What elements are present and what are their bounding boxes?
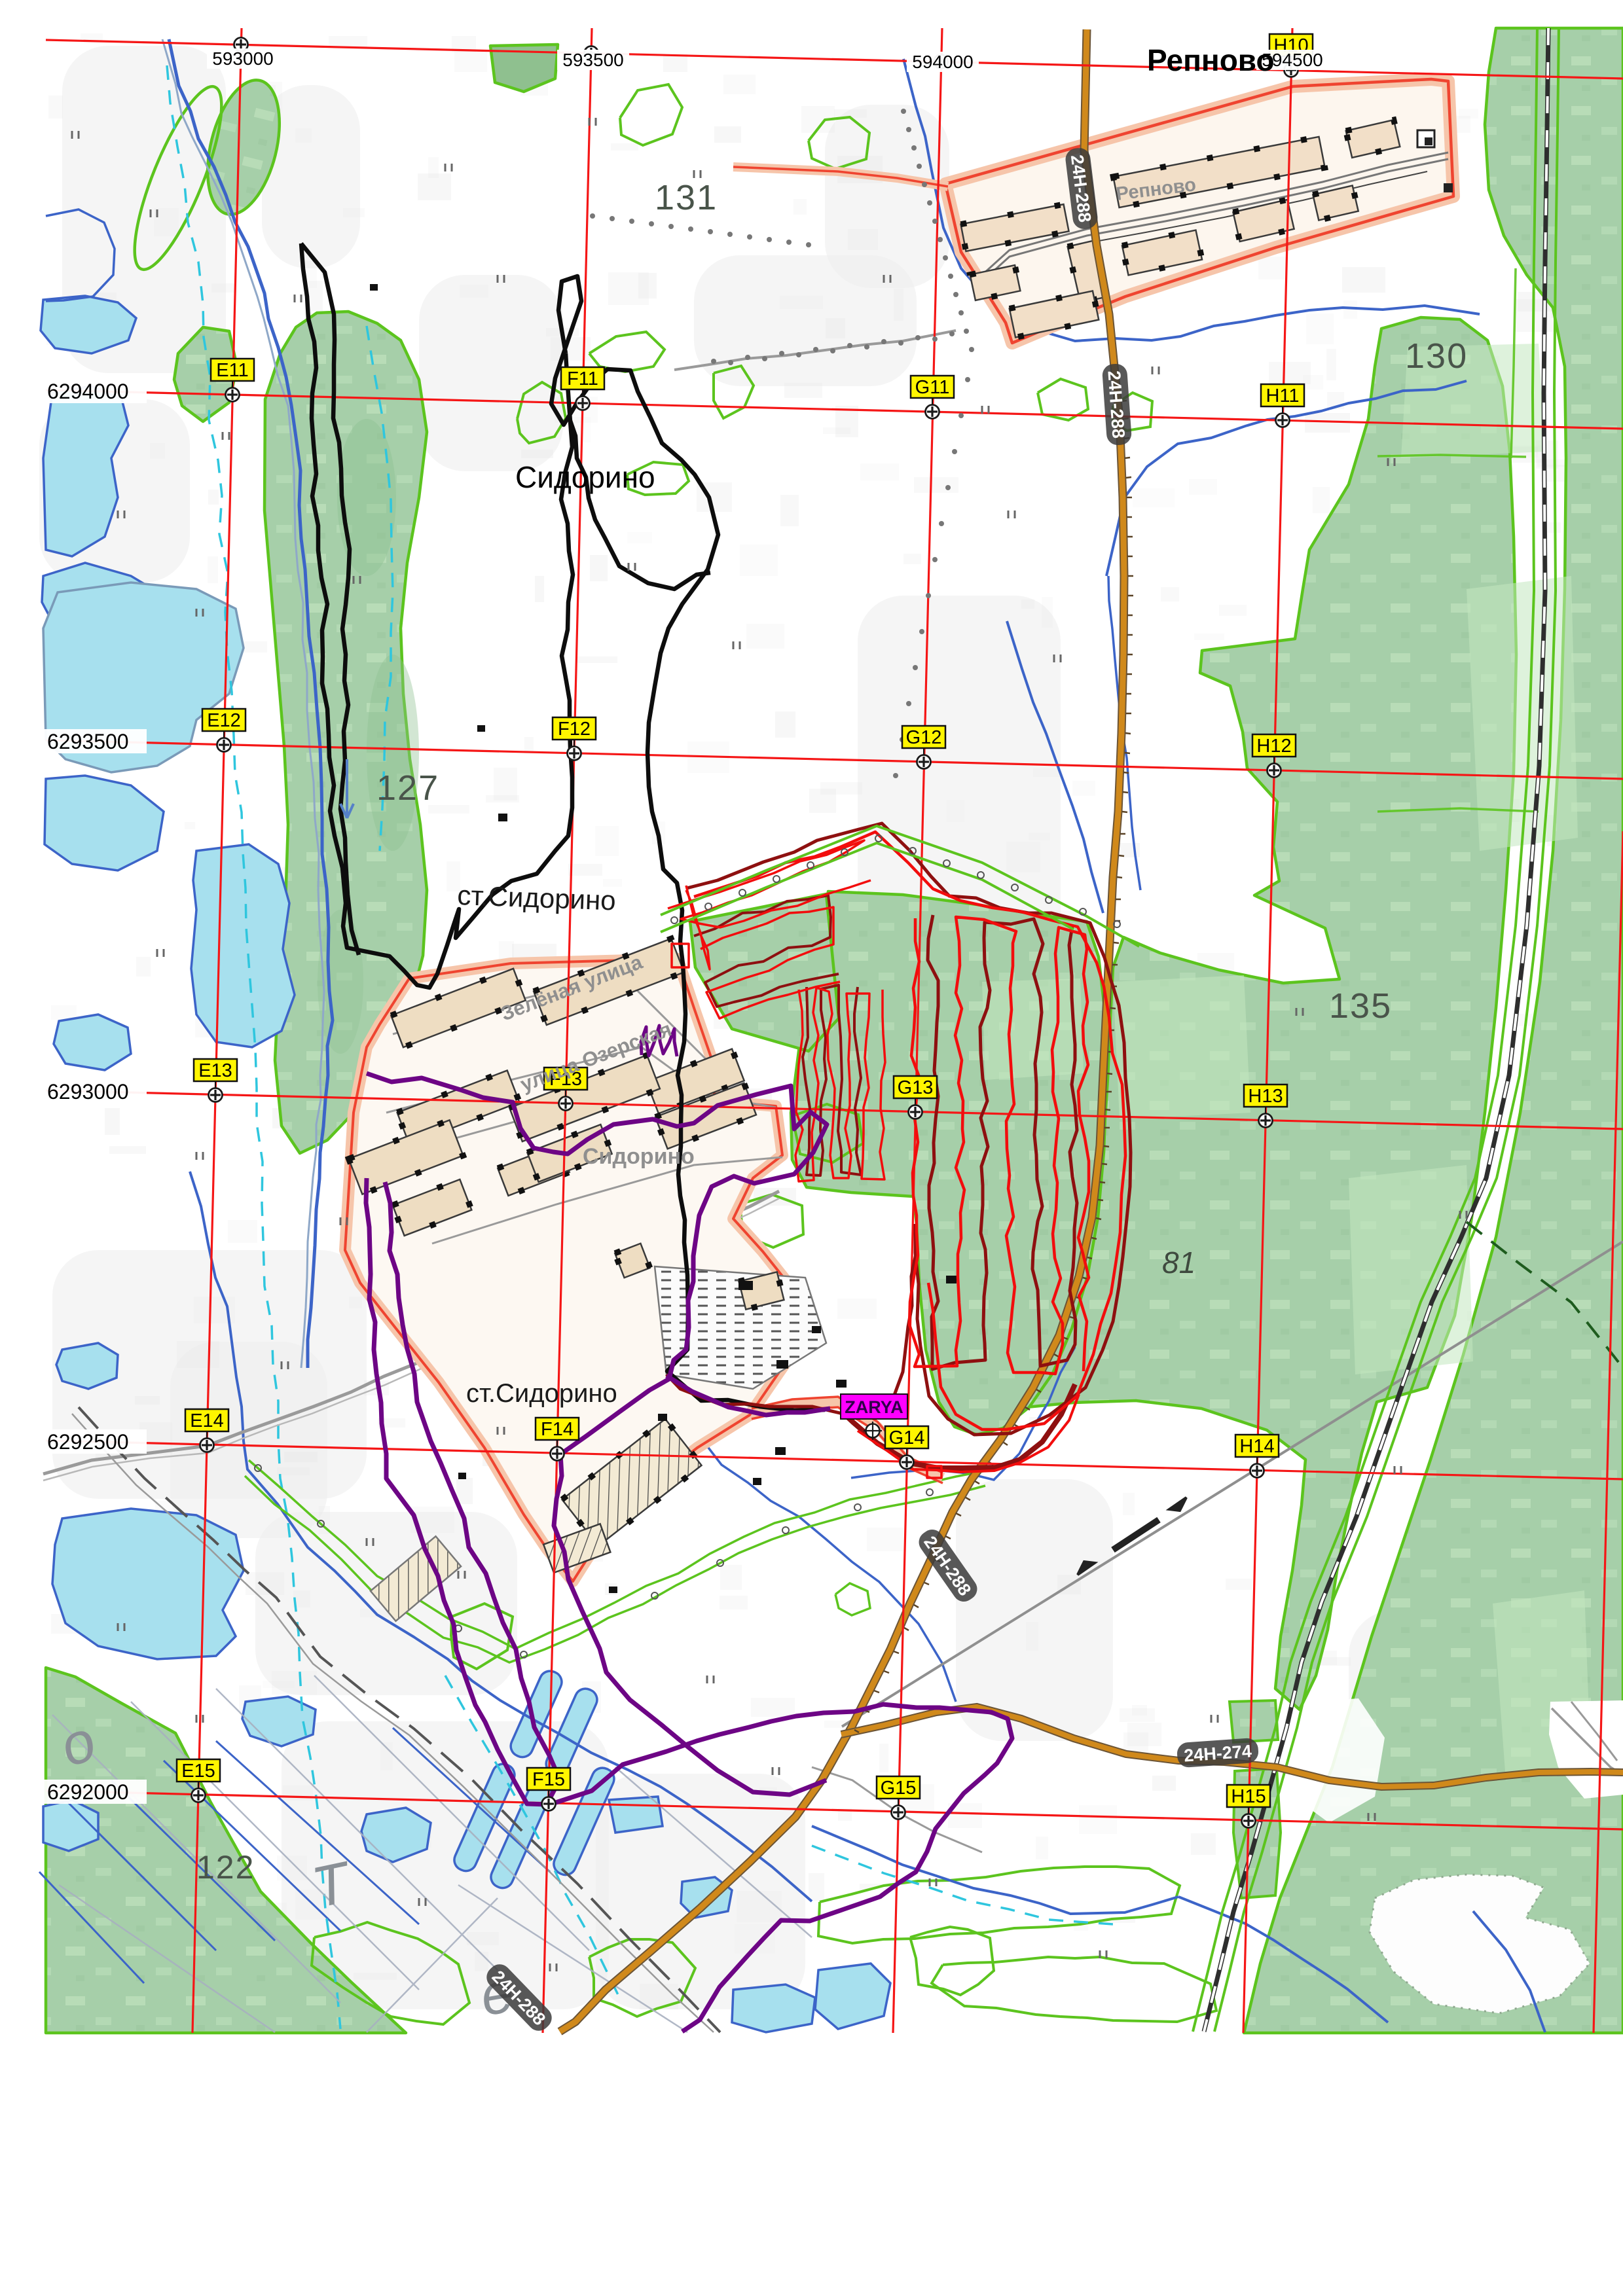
svg-text:E15: E15 (181, 1761, 215, 1782)
svg-text:593500: 593500 (562, 50, 623, 70)
svg-text:593000: 593000 (212, 48, 273, 69)
svg-text:G13: G13 (898, 1077, 934, 1098)
svg-text:H15: H15 (1231, 1786, 1266, 1807)
svg-text:ст.Сидорино: ст.Сидорино (466, 1379, 617, 1408)
svg-text:6292500: 6292500 (47, 1430, 129, 1454)
svg-text:F12: F12 (558, 719, 591, 740)
svg-text:Репново: Репново (1147, 43, 1275, 77)
svg-text:131: 131 (655, 178, 718, 217)
svg-text:6294000: 6294000 (47, 380, 129, 403)
svg-text:F14: F14 (541, 1419, 574, 1440)
svg-text:E12: E12 (207, 710, 241, 731)
svg-text:Сидорино: Сидорино (515, 460, 655, 494)
svg-text:ст.Сидорино: ст.Сидорино (457, 880, 617, 916)
svg-text:6293000: 6293000 (47, 1080, 129, 1103)
svg-text:H13: H13 (1248, 1086, 1283, 1107)
svg-text:130: 130 (1405, 336, 1468, 376)
svg-text:E11: E11 (216, 360, 248, 381)
svg-text:G12: G12 (906, 727, 942, 748)
svg-text:81: 81 (1162, 1246, 1195, 1280)
svg-text:Сидорино: Сидорино (583, 1144, 695, 1169)
svg-text:ZARYA: ZARYA (845, 1397, 903, 1417)
svg-text:6293500: 6293500 (47, 730, 129, 753)
svg-text:F11: F11 (567, 368, 598, 389)
svg-text:G15: G15 (881, 1778, 917, 1799)
svg-text:135: 135 (1329, 986, 1392, 1026)
svg-text:G14: G14 (889, 1427, 925, 1448)
svg-text:H14: H14 (1239, 1436, 1274, 1457)
svg-text:6292000: 6292000 (47, 1780, 129, 1804)
svg-text:127: 127 (376, 768, 439, 808)
svg-text:H11: H11 (1266, 386, 1299, 406)
svg-text:F15: F15 (532, 1769, 565, 1790)
svg-text:H12: H12 (1256, 736, 1291, 757)
svg-text:E14: E14 (190, 1410, 224, 1431)
svg-text:E13: E13 (198, 1060, 232, 1081)
svg-text:G11: G11 (915, 377, 950, 398)
svg-text:122: 122 (196, 1849, 255, 1886)
svg-text:594000: 594000 (912, 52, 973, 72)
